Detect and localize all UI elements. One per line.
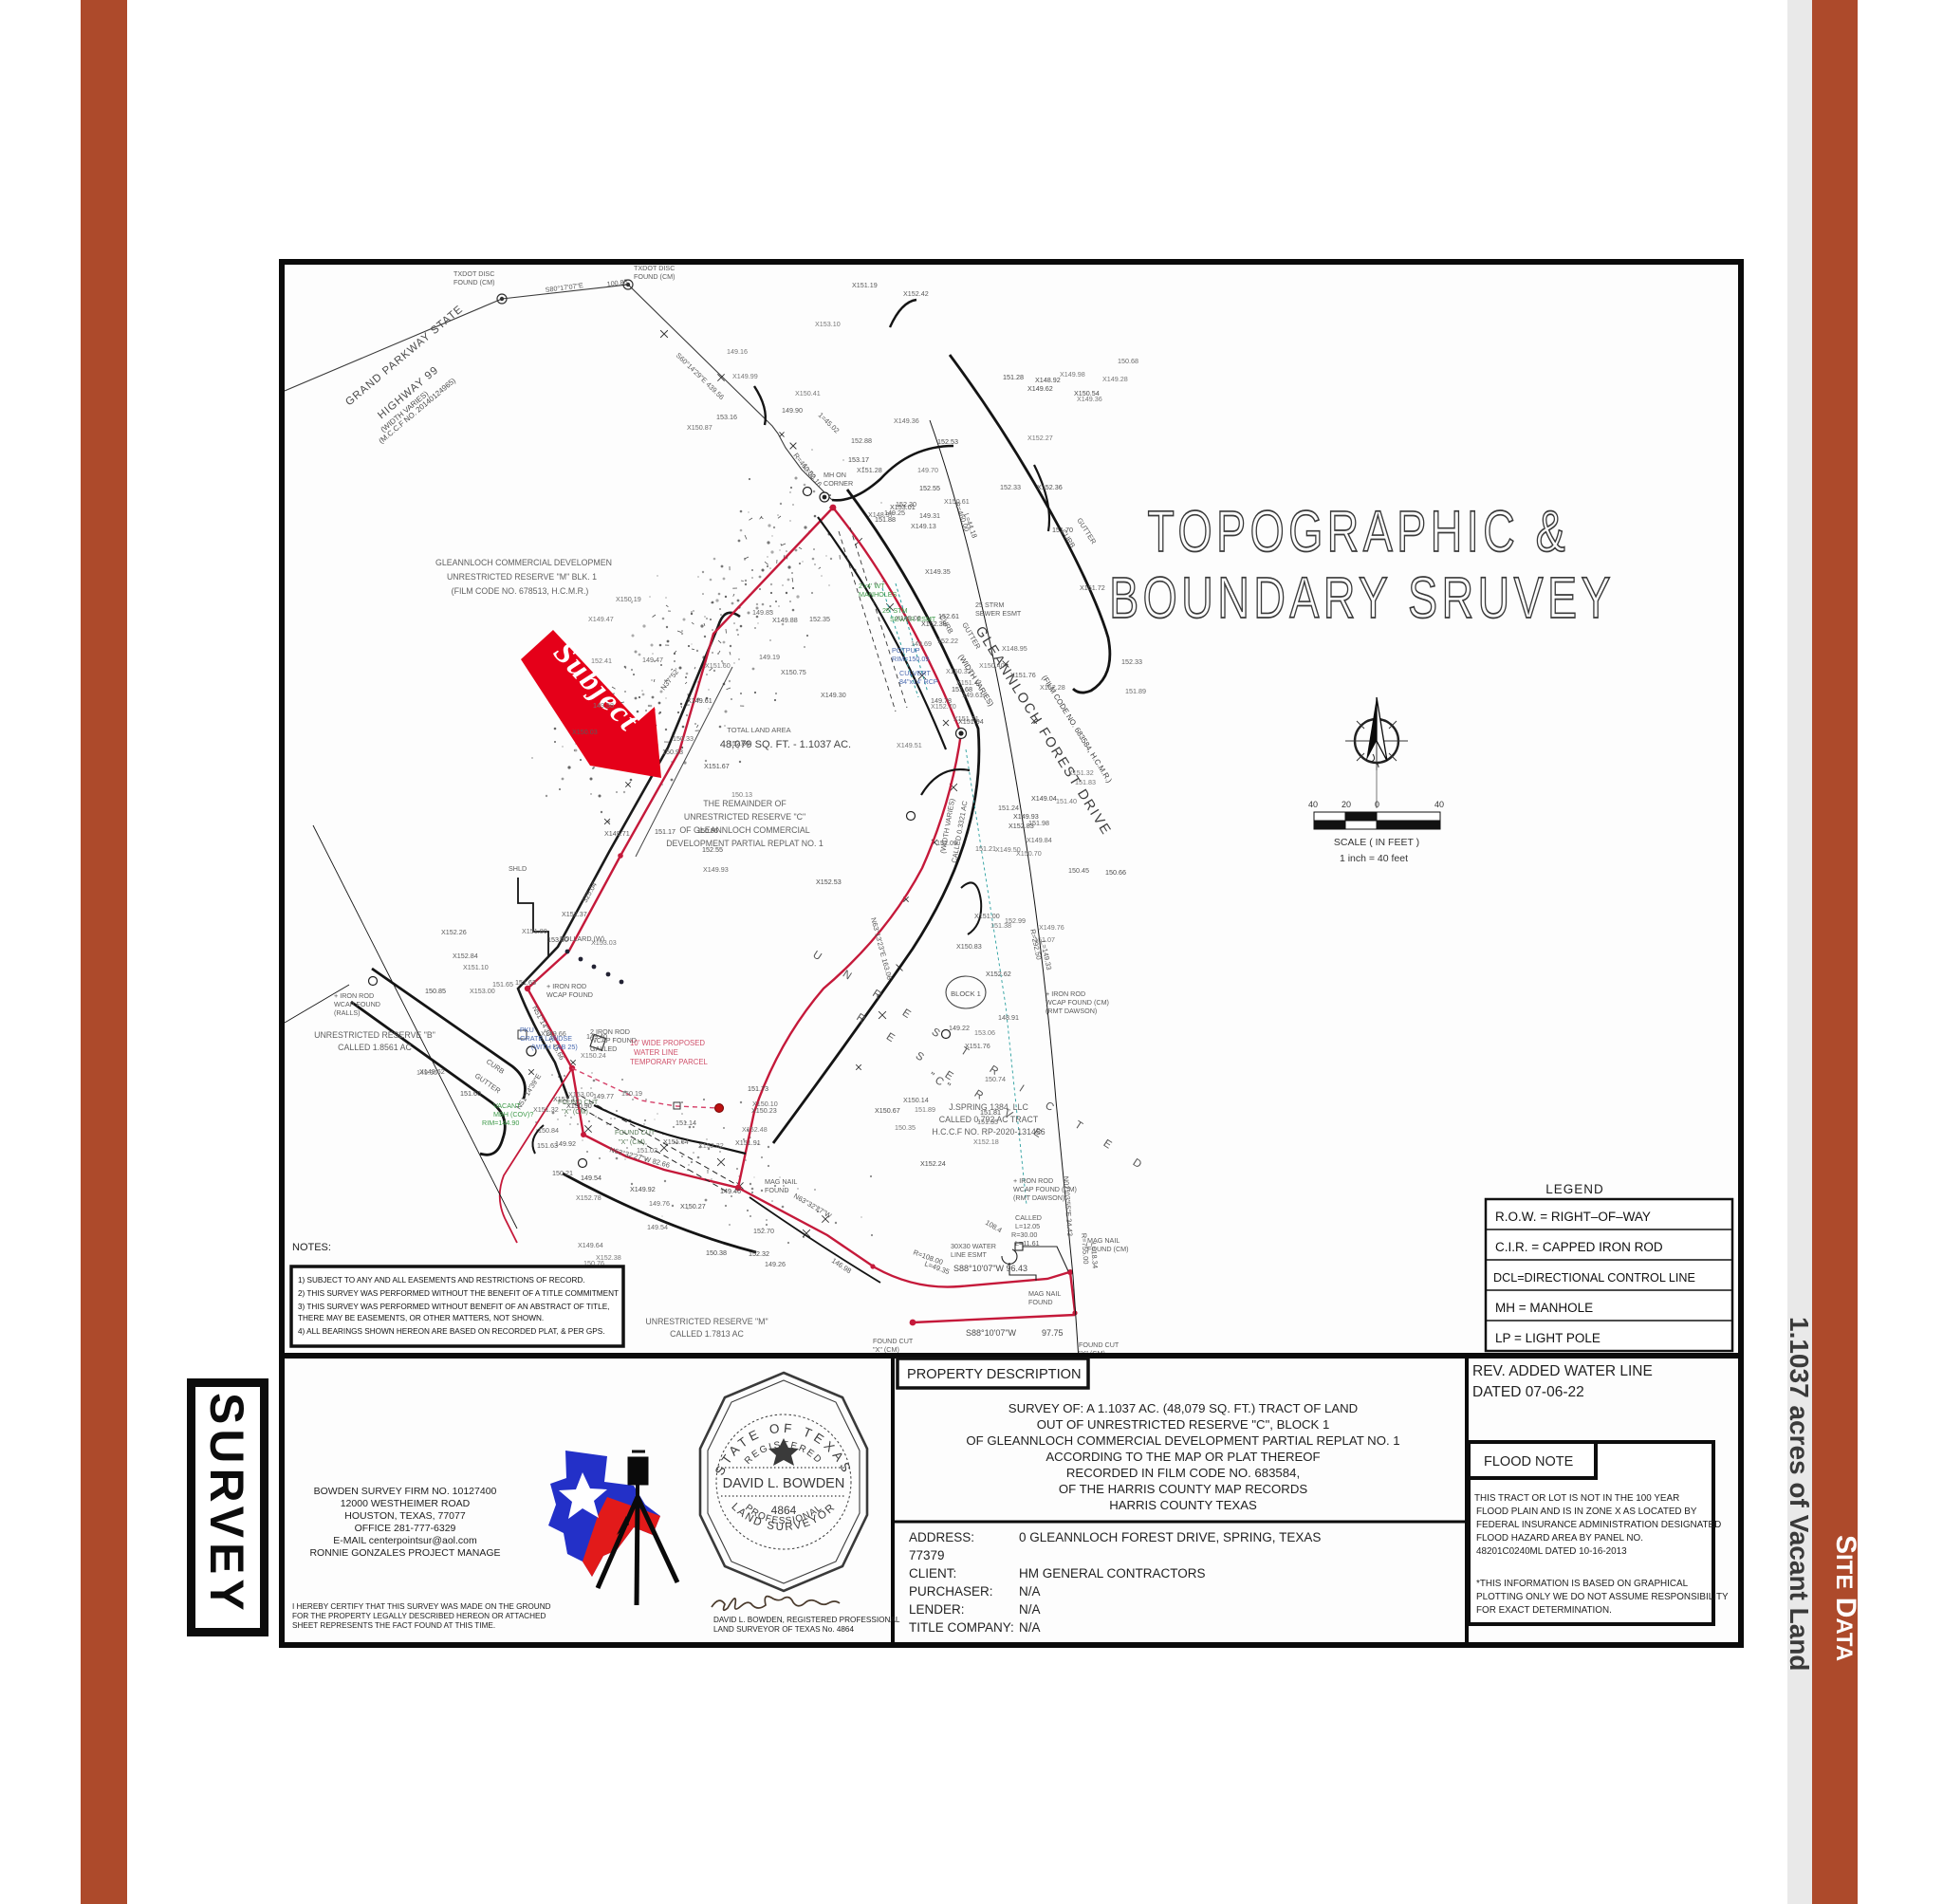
- svg-text:WCAP FOUND: WCAP FOUND: [334, 1000, 380, 1008]
- svg-text:151.89: 151.89: [1125, 687, 1146, 695]
- svg-text:UNRESTRICTED RESERVE "M" BLK.: UNRESTRICTED RESERVE "M" BLK. 1: [447, 572, 597, 582]
- svg-text:R=30.00: R=30.00: [1011, 1230, 1037, 1239]
- svg-text:LENDER:: LENDER:: [909, 1602, 965, 1617]
- svg-text:X151.72: X151.72: [1080, 583, 1105, 592]
- svg-text:100.85: 100.85: [606, 277, 628, 288]
- svg-text:40: 40: [1308, 800, 1318, 809]
- svg-text:GLEANNLOCH FOREST DRIVE: GLEANNLOCH FOREST DRIVE: [972, 624, 1115, 839]
- svg-text:RIM=144.90: RIM=144.90: [482, 1118, 519, 1127]
- svg-text:X148.97: X148.97: [868, 510, 894, 519]
- svg-text:149.92: 149.92: [555, 1139, 576, 1148]
- svg-text:X152.48: X152.48: [742, 1125, 768, 1134]
- svg-text:X149.76: X149.76: [1039, 923, 1064, 932]
- svg-text:X150.27: X150.27: [680, 1202, 706, 1211]
- svg-text:150.66: 150.66: [1105, 868, 1126, 877]
- svg-text:X149.66: X149.66: [541, 1029, 566, 1038]
- svg-text:FOUND (CM): FOUND (CM): [1087, 1245, 1129, 1253]
- svg-text:X152.36: X152.36: [1037, 483, 1063, 491]
- svg-text:0: 0: [1375, 800, 1379, 809]
- svg-text:84"x14' RCP: 84"x14' RCP: [899, 677, 938, 686]
- svg-text:X153.01: X153.01: [890, 503, 916, 511]
- svg-text:10' WIDE PROPOSED: 10' WIDE PROPOSED: [630, 1039, 705, 1047]
- svg-text:RECORDED IN FILM CODE NO. 6835: RECORDED IN FILM CODE NO. 683584,: [1066, 1466, 1300, 1480]
- svg-text:FOUND CUT: FOUND CUT: [615, 1128, 656, 1137]
- svg-text:X151.10: X151.10: [463, 963, 489, 971]
- svg-text:152.33: 152.33: [1000, 483, 1021, 491]
- svg-text:151.28: 151.28: [1003, 373, 1024, 381]
- svg-text:2) THIS SURVEY WAS PERFORMED: 2) THIS SURVEY WAS PERFORMED WITHOUT THE…: [298, 1289, 619, 1298]
- svg-text:149.69: 149.69: [911, 639, 932, 648]
- svg-text:152.32: 152.32: [749, 1249, 769, 1258]
- svg-text:X152.38: X152.38: [921, 619, 947, 628]
- svg-text:X149.64: X149.64: [578, 1241, 603, 1249]
- svg-text:152.88: 152.88: [851, 436, 872, 445]
- svg-text:FLOOD HAZARD AREA BY PANEL NO.: FLOOD HAZARD AREA BY PANEL NO.: [1476, 1533, 1643, 1544]
- svg-text:X153.03: X153.03: [591, 938, 617, 947]
- svg-text:X152.27: X152.27: [1027, 434, 1053, 442]
- svg-text:X149.71: X149.71: [604, 829, 630, 838]
- svg-text:MANHOLES: MANHOLES: [859, 590, 897, 599]
- svg-text:X149.06: X149.06: [896, 614, 921, 622]
- svg-text:X149.36: X149.36: [894, 416, 919, 425]
- svg-text:"X" (CM): "X" (CM): [619, 1137, 645, 1146]
- svg-text:ACCORDING TO THE MAP OR PLAT T: ACCORDING TO THE MAP OR PLAT THEREOF: [1046, 1450, 1320, 1464]
- svg-text:X149.99: X149.99: [732, 372, 758, 380]
- svg-text:X149.28: X149.28: [1102, 375, 1128, 383]
- svg-text:X153.10: X153.10: [815, 320, 841, 328]
- svg-text:S88°10'07"W: S88°10'07"W: [966, 1328, 1017, 1338]
- svg-text:MH ON: MH ON: [823, 471, 846, 479]
- svg-text:97.75: 97.75: [1042, 1328, 1064, 1338]
- svg-text:E-MAIL centerpointsur@aol.com: E-MAIL centerpointsur@aol.com: [333, 1535, 477, 1546]
- svg-text:149.46: 149.46: [720, 1187, 741, 1195]
- svg-text:149.90: 149.90: [782, 406, 803, 415]
- svg-text:149.19: 149.19: [759, 653, 780, 661]
- svg-text:X150.24: X150.24: [581, 1051, 606, 1060]
- svg-text:X149.61: X149.61: [687, 696, 712, 705]
- svg-text:TOTAL LAND AREA: TOTAL LAND AREA: [727, 726, 790, 734]
- svg-text:X149.51: X149.51: [897, 741, 922, 749]
- svg-text:TOPOGRAPHIC &: TOPOGRAPHIC &: [1147, 500, 1569, 564]
- svg-text:SURVEY OF: A 1.1037 AC. (48,07: SURVEY OF: A 1.1037 AC. (48,079 SQ. FT.)…: [1009, 1401, 1358, 1415]
- svg-text:X150.83: X150.83: [956, 942, 982, 951]
- svg-text:X149.62: X149.62: [1027, 384, 1053, 393]
- svg-text:153.00: 153.00: [547, 935, 568, 944]
- svg-text:148.91: 148.91: [998, 1013, 1019, 1022]
- svg-text:WCAP FOUND (CM): WCAP FOUND (CM): [1013, 1185, 1077, 1193]
- svg-text:TXDOT DISC: TXDOT DISC: [634, 265, 675, 272]
- svg-text:X152.28: X152.28: [1040, 683, 1065, 692]
- svg-text:149.16: 149.16: [727, 347, 748, 356]
- svg-text:X151.76: X151.76: [965, 1042, 990, 1050]
- svg-text:L=12.05: L=12.05: [1015, 1222, 1040, 1230]
- svg-text:151.89: 151.89: [915, 1105, 935, 1114]
- svg-text:150.45: 150.45: [1068, 866, 1089, 875]
- svg-text:PKU: PKU: [520, 1026, 534, 1034]
- svg-text:X151.91: X151.91: [735, 1138, 761, 1147]
- svg-text:LINE ESMT: LINE ESMT: [951, 1250, 988, 1259]
- svg-text:NOTES:: NOTES:: [292, 1242, 331, 1253]
- svg-text:149.61: 149.61: [962, 691, 983, 699]
- svg-text:"X" (CM): "X" (CM): [873, 1345, 899, 1354]
- svg-text:149.31: 149.31: [919, 511, 940, 520]
- svg-text:X149.98: X149.98: [1060, 370, 1085, 379]
- svg-text:X150.40: X150.40: [979, 661, 1005, 670]
- svg-text:X151.00: X151.00: [974, 912, 1000, 920]
- svg-text:RIM=150.09: RIM=150.09: [892, 655, 929, 663]
- svg-text:HM GENERAL CONTRACTORS: HM GENERAL CONTRACTORS: [1019, 1566, 1206, 1581]
- svg-text:153.17: 153.17: [848, 455, 869, 464]
- svg-text:SURVEY: SURVEY: [200, 1393, 253, 1616]
- svg-text:150.84: 150.84: [538, 1126, 559, 1135]
- svg-text:77379: 77379: [909, 1548, 945, 1562]
- svg-text:152.55: 152.55: [702, 845, 723, 854]
- svg-text:149.47: 149.47: [642, 656, 663, 664]
- svg-text:X152.26: X152.26: [441, 928, 467, 936]
- svg-text:X152.31: X152.31: [553, 1095, 579, 1103]
- svg-text:X152.37: X152.37: [562, 910, 587, 918]
- svg-text:149.54: 149.54: [647, 1223, 668, 1231]
- svg-text:X151.42: X151.42: [956, 678, 982, 687]
- svg-text:149.76: 149.76: [649, 1199, 670, 1208]
- svg-text:DEVELOPMENT PARTIAL REPLAT NO.: DEVELOPMENT PARTIAL REPLAT NO. 1: [666, 839, 823, 848]
- svg-text:151.60: 151.60: [460, 1089, 481, 1098]
- svg-text:X149.84: X149.84: [1027, 836, 1052, 844]
- svg-text:149.70: 149.70: [917, 466, 938, 474]
- svg-text:OUT OF UNRESTRICTED RESERVE "C: OUT OF UNRESTRICTED RESERVE "C", BLOCK 1: [1037, 1417, 1330, 1432]
- svg-text:151.35: 151.35: [977, 1118, 998, 1126]
- svg-text:X150.41: X150.41: [795, 389, 821, 397]
- svg-text:LP = LIGHT POLE: LP = LIGHT POLE: [1495, 1331, 1601, 1345]
- svg-text:S88°10'07"W 96.43: S88°10'07"W 96.43: [953, 1264, 1027, 1273]
- svg-text:3) THIS SURVEY WAS PERFORMED: 3) THIS SURVEY WAS PERFORMED WITHOUT BEN…: [298, 1303, 609, 1311]
- svg-text:1=45.02: 1=45.02: [817, 411, 842, 434]
- svg-text:FOR THE PROPERTY LEGALLY DESCR: FOR THE PROPERTY LEGALLY DESCRIBED HEREO…: [292, 1612, 546, 1620]
- svg-text:25 STRM: 25 STRM: [975, 601, 1004, 609]
- svg-text:GLEANNLOCH COMMERCIAL DEVELOPM: GLEANNLOCH COMMERCIAL DEVELOPMEN: [435, 558, 612, 567]
- svg-text:X149.47: X149.47: [588, 615, 614, 623]
- svg-text:2'x4' WT: 2'x4' WT: [859, 582, 885, 590]
- svg-text:20: 20: [1342, 800, 1351, 809]
- svg-text:FOUND (CM): FOUND (CM): [634, 272, 675, 281]
- svg-text:X150.75: X150.75: [781, 668, 806, 676]
- svg-text:X150.23: X150.23: [751, 1106, 777, 1115]
- svg-text:LEGEND: LEGEND: [1545, 1182, 1604, 1196]
- svg-text:DCL=DIRECTIONAL CONTROL LINE: DCL=DIRECTIONAL CONTROL LINE: [1493, 1271, 1695, 1285]
- svg-text:SITE DATA: SITE DATA: [1830, 1535, 1861, 1661]
- svg-text:152.35: 152.35: [809, 615, 830, 623]
- svg-text:FLOOD PLAIN AND IS IN ZONE X A: FLOOD PLAIN AND IS IN ZONE X AS LOCATED …: [1476, 1507, 1697, 1517]
- svg-text:C.I.R. = CAPPED IRON ROD: C.I.R. = CAPPED IRON ROD: [1495, 1240, 1663, 1254]
- svg-text:X150.19: X150.19: [616, 595, 641, 603]
- svg-text:CORNER: CORNER: [823, 479, 853, 488]
- svg-text:N/A: N/A: [1019, 1620, 1041, 1635]
- svg-text:R.O.W. = RIGHT–OF–WAY: R.O.W. = RIGHT–OF–WAY: [1495, 1210, 1651, 1224]
- svg-text:X151.94: X151.94: [958, 717, 984, 726]
- svg-text:X149.04: X149.04: [1031, 794, 1057, 803]
- svg-text:152.09: 152.09: [936, 839, 957, 847]
- svg-text:150.38: 150.38: [706, 1248, 727, 1257]
- svg-text:N63°13'23"E 163.06: N63°13'23"E 163.06: [869, 916, 894, 981]
- svg-text:152.33: 152.33: [1121, 657, 1142, 666]
- svg-text:SEWER ESMT: SEWER ESMT: [975, 609, 1022, 618]
- svg-text:X151.64: X151.64: [663, 1137, 689, 1146]
- svg-text:150.85: 150.85: [425, 987, 446, 995]
- svg-text:150.74: 150.74: [985, 1075, 1006, 1083]
- svg-text:152.41: 152.41: [591, 656, 612, 665]
- svg-text:X152.18: X152.18: [973, 1137, 999, 1146]
- svg-text:SHLD: SHLD: [509, 864, 527, 873]
- svg-text:DATED 07-06-22: DATED 07-06-22: [1472, 1384, 1584, 1400]
- svg-text:X150.87: X150.87: [687, 423, 712, 432]
- svg-text:X152.24: X152.24: [920, 1159, 946, 1168]
- svg-text:X150.67: X150.67: [875, 1106, 900, 1115]
- svg-text:WCAP FOUND (CM): WCAP FOUND (CM): [1046, 998, 1109, 1007]
- svg-text:THERE MAY BE EASEMENTS, OR OTH: THERE MAY BE EASEMENTS, OR OTHER MATTERS…: [298, 1314, 544, 1322]
- svg-text:X148.95: X148.95: [1002, 644, 1027, 653]
- svg-text:CALLED: CALLED: [1015, 1213, 1042, 1222]
- svg-text:X152.62: X152.62: [986, 970, 1011, 978]
- svg-text:TXDOT DISC: TXDOT DISC: [453, 269, 494, 278]
- svg-text:REV. ADDED WATER LINE: REV. ADDED WATER LINE: [1472, 1363, 1653, 1379]
- svg-text:CLIENT:: CLIENT:: [909, 1566, 956, 1581]
- svg-text:FOUND CUT: FOUND CUT: [873, 1337, 914, 1345]
- svg-text:UNRESTRICTED RESERVE "C": UNRESTRICTED RESERVE "C": [684, 812, 805, 822]
- svg-text:151.21: 151.21: [975, 844, 996, 853]
- svg-text:+ IRON ROD: + IRON ROD: [334, 991, 374, 1000]
- svg-text:X149.93: X149.93: [1013, 812, 1039, 821]
- svg-text:X150.32: X150.32: [946, 667, 971, 675]
- svg-text:151.38: 151.38: [990, 921, 1011, 930]
- svg-text:X151.76: X151.76: [1010, 671, 1036, 679]
- svg-text:CALLED 1.8561 AC: CALLED 1.8561 AC: [338, 1043, 412, 1052]
- svg-text:S60°14'29"E 439.56: S60°14'29"E 439.56: [675, 351, 727, 401]
- svg-text:40: 40: [1434, 800, 1444, 809]
- svg-text:149.95: 149.95: [416, 1068, 437, 1077]
- svg-text:4864: 4864: [771, 1504, 797, 1517]
- svg-text:149.58: 149.58: [593, 701, 614, 710]
- svg-text:(RMT DAWSON): (RMT DAWSON): [1013, 1193, 1064, 1202]
- svg-text:149.26: 149.26: [765, 1260, 786, 1268]
- svg-text:149.78: 149.78: [931, 696, 952, 705]
- svg-text:SCALE ( IN FEET ): SCALE ( IN FEET ): [1334, 837, 1419, 848]
- svg-text:(RALLS): (RALLS): [334, 1008, 361, 1017]
- svg-text:X149.35: X149.35: [925, 567, 951, 576]
- svg-text:X153.00: X153.00: [470, 987, 495, 995]
- svg-text:WATER LINE: WATER LINE: [634, 1048, 678, 1057]
- svg-text:+ IRON ROD: + IRON ROD: [546, 982, 586, 990]
- svg-text:FOUND CUT: FOUND CUT: [1079, 1340, 1120, 1349]
- svg-text:UNRESTRICTED RESERVE "B": UNRESTRICTED RESERVE "B": [314, 1030, 435, 1040]
- svg-text:151.70: 151.70: [1052, 526, 1073, 534]
- svg-text:X152.42: X152.42: [903, 289, 929, 298]
- svg-text:VACANT: VACANT: [493, 1101, 521, 1110]
- svg-text:N/A: N/A: [1019, 1584, 1041, 1599]
- svg-text:150.55: 150.55: [697, 826, 718, 835]
- svg-text:151.02: 151.02: [637, 1146, 657, 1155]
- svg-text:150.33: 150.33: [673, 734, 694, 743]
- svg-text:FOUND: FOUND: [1028, 1298, 1053, 1306]
- svg-text:FOUND (CM): FOUND (CM): [453, 278, 495, 287]
- svg-text:CULVERT: CULVERT: [899, 669, 931, 677]
- svg-text:X151.32: X151.32: [533, 1105, 559, 1114]
- svg-text:150.13: 150.13: [731, 790, 752, 799]
- svg-text:(WITH LAB 25): (WITH LAB 25): [531, 1043, 578, 1051]
- svg-text:151.63: 151.63: [515, 978, 536, 987]
- svg-text:30X30 WATER: 30X30 WATER: [951, 1242, 996, 1250]
- svg-text:(RMT DAWSON): (RMT DAWSON): [1046, 1007, 1097, 1015]
- svg-text:THIS TRACT OR LOT IS NOT IN TH: THIS TRACT OR LOT IS NOT IN THE 100 YEAR: [1474, 1493, 1679, 1504]
- svg-text:X152.53: X152.53: [816, 878, 842, 886]
- svg-text:149.40: 149.40: [586, 1032, 607, 1041]
- svg-text:BOUNDARY SRUVEY: BOUNDARY SRUVEY: [1109, 566, 1615, 631]
- svg-text:152.53: 152.53: [937, 437, 958, 446]
- svg-text:151.65: 151.65: [492, 980, 513, 989]
- svg-text:PROPERTY DESCRIPTION: PROPERTY DESCRIPTION: [907, 1367, 1082, 1382]
- svg-text:152.61: 152.61: [938, 612, 959, 620]
- svg-text:FOUND: FOUND: [765, 1186, 789, 1194]
- svg-text:N/A: N/A: [1019, 1602, 1041, 1617]
- svg-text:X151.32: X151.32: [1068, 768, 1094, 777]
- svg-text:X149.92: X149.92: [630, 1185, 656, 1193]
- svg-text:1.1037 acres of Vacant Land: 1.1037 acres of Vacant Land: [1785, 1317, 1814, 1672]
- svg-text:149.83: 149.83: [752, 608, 773, 617]
- svg-text:I HEREBY CERTIFY THAT THIS SUR: I HEREBY CERTIFY THAT THIS SURVEY WAS MA…: [292, 1602, 551, 1611]
- svg-text:L=11.61: L=11.61: [1015, 1239, 1040, 1248]
- svg-text:151.83: 151.83: [1075, 778, 1096, 786]
- svg-text:12000 WESTHEIMER ROAD: 12000 WESTHEIMER ROAD: [341, 1498, 471, 1509]
- svg-text:48201C0240ML DATED 10-16-2013: 48201C0240ML DATED 10-16-2013: [1476, 1546, 1627, 1557]
- svg-text:(FILM CODE NO. 678513, H.C.M.R: (FILM CODE NO. 678513, H.C.M.R.): [452, 586, 589, 596]
- svg-text:152.60: 152.60: [729, 739, 749, 748]
- svg-text:X151.60: X151.60: [705, 661, 731, 670]
- svg-text:152.22: 152.22: [937, 637, 958, 645]
- svg-text:*THIS INFORMATION IS BASED ON: *THIS INFORMATION IS BASED ON GRAPHICAL: [1476, 1579, 1689, 1589]
- svg-text:X151.67: X151.67: [704, 762, 730, 770]
- svg-text:X151.80: X151.80: [522, 927, 547, 935]
- svg-text:X148.92: X148.92: [1035, 376, 1061, 384]
- svg-text:150.21: 150.21: [552, 1169, 573, 1177]
- svg-text:N63°32'27"W: N63°32'27"W: [792, 1192, 834, 1221]
- svg-text:150.68: 150.68: [1118, 357, 1138, 365]
- svg-text:X152.32: X152.32: [698, 1141, 724, 1150]
- svg-text:+ IRON ROD: + IRON ROD: [1013, 1176, 1053, 1185]
- svg-text:X149.88: X149.88: [772, 616, 798, 624]
- svg-text:151.73: 151.73: [748, 1084, 768, 1093]
- svg-text:149.77: 149.77: [593, 1092, 614, 1100]
- svg-text:+ IRON ROD: + IRON ROD: [1046, 989, 1085, 998]
- svg-text:BOWDEN SURVEY FIRM NO. 1012740: BOWDEN SURVEY FIRM NO. 10127400: [314, 1486, 497, 1497]
- svg-text:X149.30: X149.30: [821, 691, 846, 699]
- svg-text:152.55: 152.55: [919, 484, 940, 492]
- svg-text:1) SUBJECT TO ANY AND ALL EAS: 1) SUBJECT TO ANY AND ALL EASEMENTS AND …: [298, 1276, 585, 1285]
- svg-text:X151.28: X151.28: [857, 466, 882, 474]
- svg-text:108.4: 108.4: [984, 1218, 1004, 1234]
- svg-text:N37°52': N37°52': [658, 666, 681, 692]
- svg-text:MAG NAIL: MAG NAIL: [765, 1177, 797, 1186]
- svg-text:WCAP FOUND: WCAP FOUND: [546, 990, 593, 999]
- svg-text:151.07: 151.07: [1034, 935, 1055, 944]
- svg-text:MAG NAIL: MAG NAIL: [1087, 1236, 1120, 1245]
- svg-text:X152.84: X152.84: [453, 952, 478, 960]
- svg-text:OFFICE 281-777-6329: OFFICE 281-777-6329: [355, 1523, 456, 1534]
- svg-text:X150.61: X150.61: [944, 497, 970, 506]
- svg-text:150.35: 150.35: [895, 1123, 916, 1132]
- svg-text:X150.03: X150.03: [572, 728, 598, 736]
- svg-text:SHEET REPRESENTS THE FACT FOUN: SHEET REPRESENTS THE FACT FOUND AT THIS …: [292, 1621, 495, 1630]
- svg-text:X152.83: X152.83: [1009, 822, 1034, 830]
- svg-text:MAG NAIL: MAG NAIL: [1028, 1289, 1061, 1298]
- svg-text:MH = MANHOLE: MH = MANHOLE: [1495, 1301, 1593, 1315]
- svg-text:DAVID L. BOWDEN, REGISTERED PR: DAVID L. BOWDEN, REGISTERED PROFESSIONAL: [713, 1616, 900, 1624]
- svg-text:GUTTER: GUTTER: [1075, 516, 1098, 545]
- svg-text:151.24: 151.24: [998, 804, 1019, 812]
- svg-text:X149.50: X149.50: [995, 845, 1021, 854]
- svg-text:4) ALL BEARINGS SHOWN HEREON: 4) ALL BEARINGS SHOWN HEREON ARE BASED O…: [298, 1327, 604, 1336]
- svg-text:X149.93: X149.93: [703, 865, 729, 874]
- svg-text:TEMPORARY PARCEL: TEMPORARY PARCEL: [630, 1058, 709, 1066]
- svg-text:MBH (COV)?: MBH (COV)?: [493, 1110, 533, 1118]
- svg-text:149.22: 149.22: [949, 1024, 970, 1032]
- svg-text:1 inch = 40 feet: 1 inch = 40 feet: [1340, 853, 1408, 864]
- svg-text:FOR EXACT DETERMINATION.: FOR EXACT DETERMINATION.: [1476, 1605, 1612, 1616]
- svg-text:X151.19: X151.19: [852, 281, 878, 289]
- svg-text:153.16: 153.16: [716, 413, 737, 421]
- svg-text:151.14: 151.14: [675, 1118, 696, 1127]
- svg-text:151.81: 151.81: [980, 1108, 1001, 1117]
- svg-text:HOUSTON, TEXAS, 77077: HOUSTON, TEXAS, 77077: [344, 1510, 466, 1522]
- svg-text:FEDERAL INSURANCE ADMINISTRATI: FEDERAL INSURANCE ADMINISTRATION DESIGNA…: [1476, 1520, 1721, 1530]
- svg-text:PLOTTING ONLY WE DO NOT ASSUME: PLOTTING ONLY WE DO NOT ASSUME RESPONSIB…: [1476, 1592, 1729, 1602]
- svg-text:OF THE HARRIS COUNTY MAP RECOR: OF THE HARRIS COUNTY MAP RECORDS: [1059, 1482, 1308, 1496]
- svg-text:149.54: 149.54: [581, 1174, 601, 1182]
- svg-text:HARRIS COUNTY TEXAS: HARRIS COUNTY TEXAS: [1109, 1498, 1257, 1512]
- svg-text:BLOCK 1: BLOCK 1: [951, 989, 981, 998]
- svg-text:OF GLEANNLOCH COMMERCIAL DEVEL: OF GLEANNLOCH COMMERCIAL DEVELOPMENT PAR…: [966, 1433, 1399, 1448]
- svg-text:LAND SURVEYOR OF TEXAS No. 486: LAND SURVEYOR OF TEXAS No. 4864: [713, 1625, 854, 1634]
- svg-text:X152.78: X152.78: [576, 1193, 601, 1202]
- svg-text:UNRESTRICTED RESERVE "M": UNRESTRICTED RESERVE "M": [645, 1317, 768, 1326]
- svg-text:FLOOD NOTE: FLOOD NOTE: [1484, 1454, 1574, 1470]
- svg-text:153.06: 153.06: [974, 1028, 995, 1037]
- svg-text:151.40: 151.40: [1056, 797, 1077, 805]
- svg-text:DAVID L. BOWDEN: DAVID L. BOWDEN: [723, 1476, 845, 1491]
- svg-text:CALLED 1.7813 AC: CALLED 1.7813 AC: [670, 1329, 744, 1339]
- svg-text:152.70: 152.70: [753, 1227, 774, 1235]
- svg-text:X150.14: X150.14: [903, 1096, 929, 1104]
- svg-text:X149.36: X149.36: [1077, 395, 1102, 403]
- svg-text:THE REMAINDER OF: THE REMAINDER OF: [703, 799, 786, 808]
- svg-text:RONNIE GONZALES PROJECT MANAGE: RONNIE GONZALES PROJECT MANAGE: [309, 1547, 500, 1559]
- svg-text:150.93: 150.93: [662, 748, 683, 756]
- svg-text:151.17: 151.17: [655, 827, 675, 836]
- svg-text:X149.13: X149.13: [911, 522, 936, 530]
- svg-text:TITLE COMPANY:: TITLE COMPANY:: [909, 1620, 1014, 1635]
- svg-text:150.19: 150.19: [621, 1089, 642, 1098]
- svg-text:PURCHASER:: PURCHASER:: [909, 1584, 993, 1599]
- svg-text:0 GLEANNLOCH FOREST DRIVE, SPR: 0 GLEANNLOCH FOREST DRIVE, SPRING, TEXAS: [1019, 1530, 1321, 1544]
- svg-text:ADDRESS:: ADDRESS:: [909, 1530, 974, 1544]
